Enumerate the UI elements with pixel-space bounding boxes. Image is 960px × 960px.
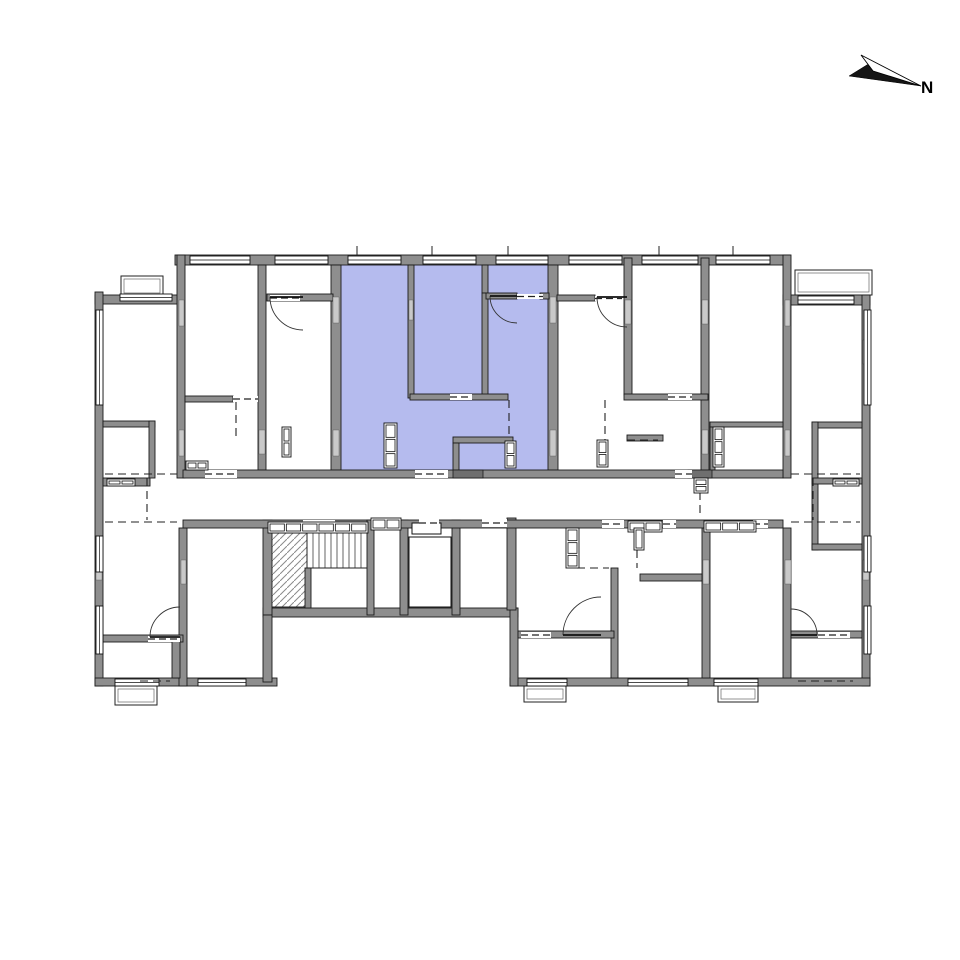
wall	[263, 615, 272, 682]
door-swing-arc	[563, 597, 601, 635]
floor-plan-page: N	[0, 0, 960, 960]
door-swing-arc	[597, 297, 627, 327]
wall	[812, 544, 862, 550]
wall	[305, 568, 311, 608]
wall	[453, 443, 459, 470]
wall-pier	[785, 300, 790, 326]
wall-pier	[703, 560, 709, 584]
wall-pier	[550, 430, 556, 456]
wall-pier	[409, 300, 413, 320]
wall-pier-dark	[453, 470, 483, 478]
wall	[452, 520, 460, 615]
wall	[482, 265, 488, 293]
wall	[408, 265, 414, 398]
wall-pier	[785, 560, 791, 584]
wall-pier	[259, 430, 265, 454]
wall	[510, 608, 518, 686]
north-arrow	[849, 55, 921, 86]
wall-pier	[333, 430, 339, 456]
door-swing-arc	[150, 607, 180, 637]
door-swing-arc	[270, 297, 303, 330]
wall	[453, 437, 513, 443]
wall-pier	[550, 297, 556, 323]
stairwell	[267, 533, 367, 607]
wall	[783, 528, 791, 678]
wall	[149, 421, 155, 478]
wall-pier	[702, 300, 708, 324]
wall-pier	[702, 430, 708, 454]
wall	[482, 293, 488, 397]
north-label: N	[921, 78, 933, 98]
wall	[507, 518, 516, 610]
wall	[624, 394, 708, 400]
wall-pier	[625, 300, 631, 324]
wall	[640, 574, 702, 581]
wall	[624, 258, 632, 395]
wall	[710, 422, 783, 427]
stair-shaft-hatch	[267, 533, 307, 607]
wall-pier	[179, 430, 184, 456]
wall	[185, 396, 233, 402]
wall-pier	[333, 297, 339, 323]
wall	[103, 421, 155, 427]
wall	[263, 520, 272, 615]
wall	[812, 422, 862, 428]
balcony	[524, 686, 566, 702]
wall	[367, 520, 374, 615]
elevator	[409, 523, 451, 607]
wall-pier	[179, 300, 184, 326]
balcony	[718, 686, 758, 702]
elevator-car	[409, 537, 451, 607]
wall	[702, 528, 710, 678]
wall	[400, 520, 408, 615]
wall	[611, 568, 618, 678]
balcony	[795, 270, 872, 295]
wall-pier	[181, 560, 186, 584]
wall	[557, 295, 595, 301]
wall	[263, 608, 518, 617]
wall-pier	[785, 430, 790, 456]
floor-plan[interactable]	[0, 0, 960, 960]
wall	[172, 637, 180, 678]
